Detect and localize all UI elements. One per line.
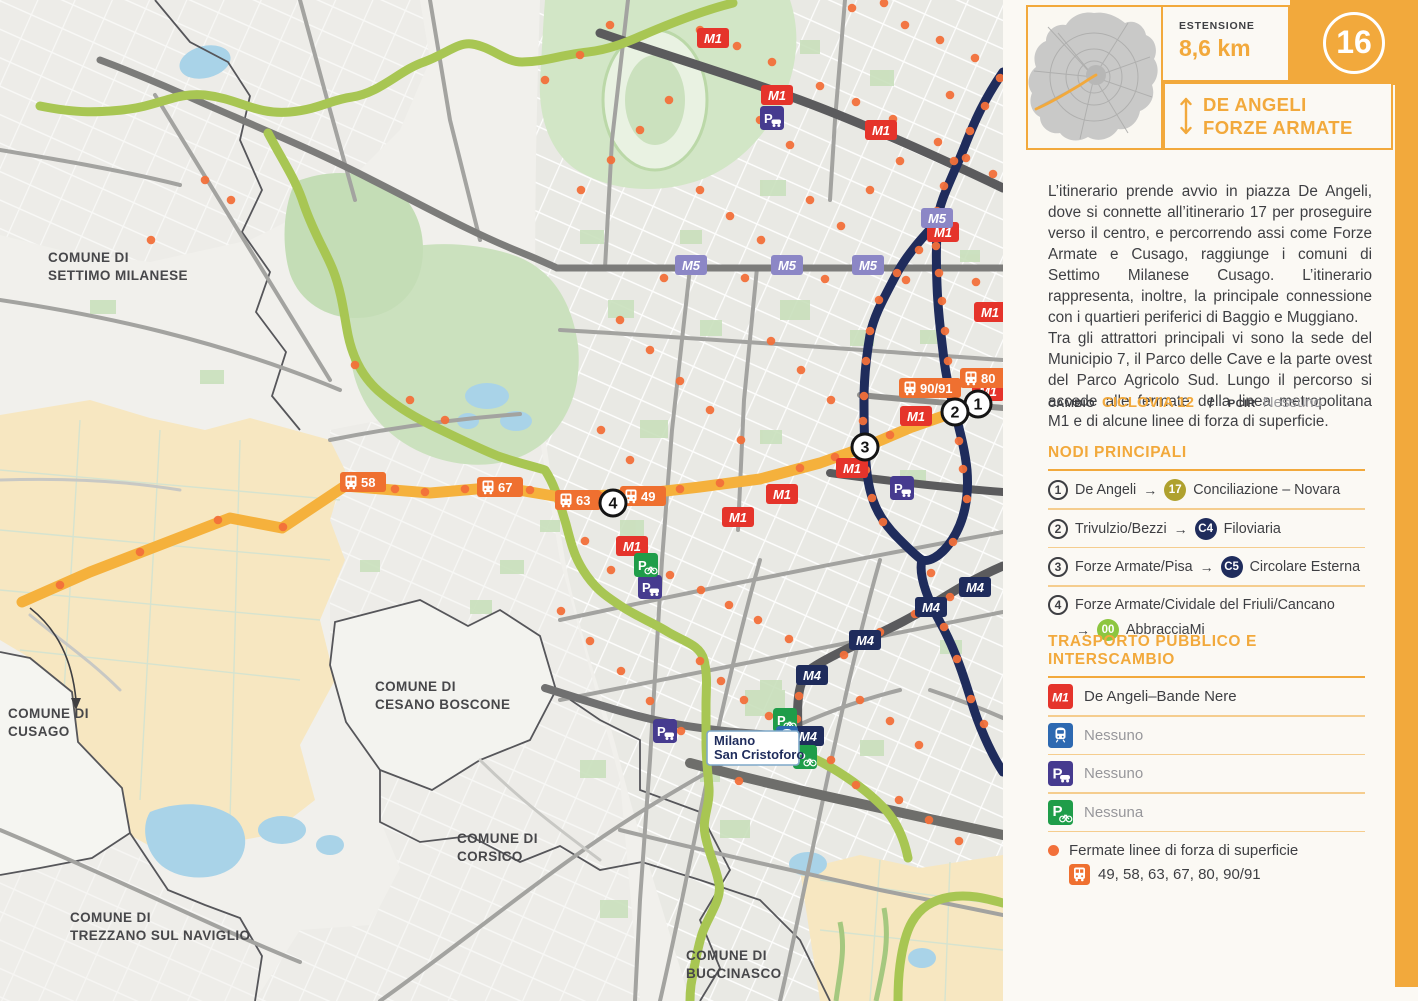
accent-side-bar xyxy=(1395,0,1418,987)
pcir-label: PCIR xyxy=(1228,398,1256,410)
svg-text:P: P xyxy=(764,111,773,126)
svg-text:M4: M4 xyxy=(922,600,941,615)
itinerary-number: 16 xyxy=(1323,12,1385,74)
nodo-number: 4 xyxy=(1048,595,1068,615)
nodo-from: De Angeli xyxy=(1075,482,1136,498)
extension-label: ESTENSIONE xyxy=(1179,20,1288,32)
svg-text:M4: M4 xyxy=(856,633,875,648)
nodo-number: 1 xyxy=(1048,480,1068,500)
svg-text:Milano: Milano xyxy=(714,733,755,748)
svg-text:M1: M1 xyxy=(981,305,999,320)
svg-text:M1: M1 xyxy=(704,31,722,46)
svg-text:67: 67 xyxy=(498,480,512,495)
line-badge: C5 xyxy=(1221,556,1243,578)
trasporto-section: TRASPORTO PUBBLICO E INTERSCAMBIO M1De A… xyxy=(1048,633,1365,885)
title-line-1: DE ANGELI xyxy=(1203,93,1353,116)
m1-icon: M1 xyxy=(1048,684,1073,709)
info-sidebar: ESTENSIONE 8,6 km 16 DE ANGELI FORZE ARM… xyxy=(1003,0,1418,1001)
p-car-icon: P xyxy=(1048,761,1073,786)
updown-arrow-icon xyxy=(1179,93,1193,139)
slash-separator: / xyxy=(1209,394,1213,410)
trasporto-row-m1[interactable]: M1De Angeli–Bande Nere xyxy=(1048,678,1365,715)
svg-text:M1: M1 xyxy=(729,510,747,525)
svg-text:90/91: 90/91 xyxy=(920,381,953,396)
nodo-number: 3 xyxy=(1048,557,1068,577)
svg-text:M1: M1 xyxy=(872,123,890,138)
svg-text:M1: M1 xyxy=(907,409,925,424)
itinerary-title-box: DE ANGELI FORZE ARMATE xyxy=(1163,82,1393,150)
svg-text:4: 4 xyxy=(609,496,618,513)
nodo-from: Trivulzio/Bezzi xyxy=(1075,521,1167,537)
svg-text:49: 49 xyxy=(641,489,655,504)
svg-text:2: 2 xyxy=(951,405,960,422)
nodo-from: Forze Armate/Cividale del Friuli/Cancano xyxy=(1075,597,1335,613)
itinerary-number-box: 16 xyxy=(1290,0,1418,85)
cambio-label: CAMBIO xyxy=(1048,398,1095,410)
nodo-from: Forze Armate/Pisa xyxy=(1075,559,1193,575)
svg-text:P: P xyxy=(657,724,666,739)
svg-text:M4: M4 xyxy=(966,580,985,595)
svg-text:M5: M5 xyxy=(928,211,947,226)
station-label: MilanoSan Cristoforo xyxy=(707,731,804,765)
extension-value: 8,6 km xyxy=(1179,35,1288,62)
svg-text:3: 3 xyxy=(861,440,870,457)
svg-text:1: 1 xyxy=(974,397,983,414)
pcir-value: Nessuno xyxy=(1263,394,1322,411)
fermate-title: Fermate linee di forza di superficie xyxy=(1069,842,1298,859)
cambio-value[interactable]: CICLOVIA 12 xyxy=(1102,394,1194,411)
line-badge: C4 xyxy=(1195,518,1217,540)
svg-text:M4: M4 xyxy=(799,729,818,744)
arrow: → xyxy=(1200,559,1214,575)
milan-minimap xyxy=(1026,5,1163,150)
arrow: → xyxy=(1143,482,1157,498)
nodi-principali-section: NODI PRINCIPALI 1De Angeli→17Conciliazio… xyxy=(1048,444,1365,648)
svg-text:M1: M1 xyxy=(768,88,786,103)
svg-text:P: P xyxy=(642,580,651,595)
svg-text:M4: M4 xyxy=(803,668,822,683)
trasporto-text: De Angeli–Bande Nere xyxy=(1084,688,1237,705)
svg-text:M5: M5 xyxy=(859,258,878,273)
svg-text:58: 58 xyxy=(361,475,375,490)
bus-icon xyxy=(1069,864,1090,885)
svg-text:M1: M1 xyxy=(773,487,791,502)
nodo-to: Circolare Esterna xyxy=(1250,559,1360,575)
svg-text:M1: M1 xyxy=(623,539,641,554)
map-area[interactable]: M1M1M1M1M1M1M1M1M1M1M1M5M5M5M5M4M4M4M4M4… xyxy=(0,0,1003,1001)
p-bike-icon: P xyxy=(1048,800,1073,825)
trasporto-text: Nessuno xyxy=(1084,765,1143,782)
svg-text:M1: M1 xyxy=(843,461,861,476)
trasporto-heading: TRASPORTO PUBBLICO E INTERSCAMBIO xyxy=(1048,633,1365,669)
svg-text:P: P xyxy=(1053,803,1063,820)
nodo-item-1[interactable]: 1De Angeli→17Conciliazione – Novara xyxy=(1048,471,1365,508)
fermate-lines: 49, 58, 63, 67, 80, 90/91 xyxy=(1098,866,1261,883)
city-map[interactable]: M1M1M1M1M1M1M1M1M1M1M1M5M5M5M5M4M4M4M4M4… xyxy=(0,0,1003,1001)
svg-text:P: P xyxy=(1053,766,1063,783)
svg-text:80: 80 xyxy=(981,371,995,386)
svg-text:M5: M5 xyxy=(682,258,701,273)
trasporto-text: Nessuna xyxy=(1084,804,1143,821)
arrow: → xyxy=(1174,521,1188,537)
fermate-block: Fermate linee di forza di superficie 49,… xyxy=(1048,832,1365,885)
trasporto-row-p-bike[interactable]: PNessuna xyxy=(1048,794,1365,831)
itinerary-page: M1M1M1M1M1M1M1M1M1M1M1M5M5M5M5M4M4M4M4M4… xyxy=(0,0,1418,1001)
stop-dot-icon xyxy=(1048,845,1059,856)
nodi-heading: NODI PRINCIPALI xyxy=(1048,444,1365,462)
svg-text:P: P xyxy=(894,481,903,496)
title-line-2: FORZE ARMATE xyxy=(1203,116,1353,139)
cambio-row: CAMBIO CICLOVIA 12 / PCIR Nessuno xyxy=(1048,394,1372,411)
nodo-number: 2 xyxy=(1048,519,1068,539)
nodo-to: Conciliazione – Novara xyxy=(1193,482,1340,498)
svg-text:San Cristoforo: San Cristoforo xyxy=(714,747,804,762)
nodo-item-3[interactable]: 3Forze Armate/Pisa→C5Circolare Esterna xyxy=(1048,548,1365,585)
svg-text:P: P xyxy=(777,713,786,728)
line-badge: 17 xyxy=(1164,479,1186,501)
svg-text:M1: M1 xyxy=(1052,691,1069,705)
trasporto-text: Nessuno xyxy=(1084,727,1143,744)
trasporto-row-train[interactable]: Nessuno xyxy=(1048,717,1365,754)
trasporto-row-p-car[interactable]: PNessuno xyxy=(1048,755,1365,792)
svg-text:M5: M5 xyxy=(778,258,797,273)
nodo-item-2[interactable]: 2Trivulzio/Bezzi→C4Filoviaria xyxy=(1048,510,1365,547)
svg-text:63: 63 xyxy=(576,493,590,508)
nodo-to: Filoviaria xyxy=(1224,521,1281,537)
train-icon xyxy=(1048,723,1073,748)
extension-box: ESTENSIONE 8,6 km xyxy=(1163,5,1290,82)
svg-text:P: P xyxy=(638,558,647,573)
